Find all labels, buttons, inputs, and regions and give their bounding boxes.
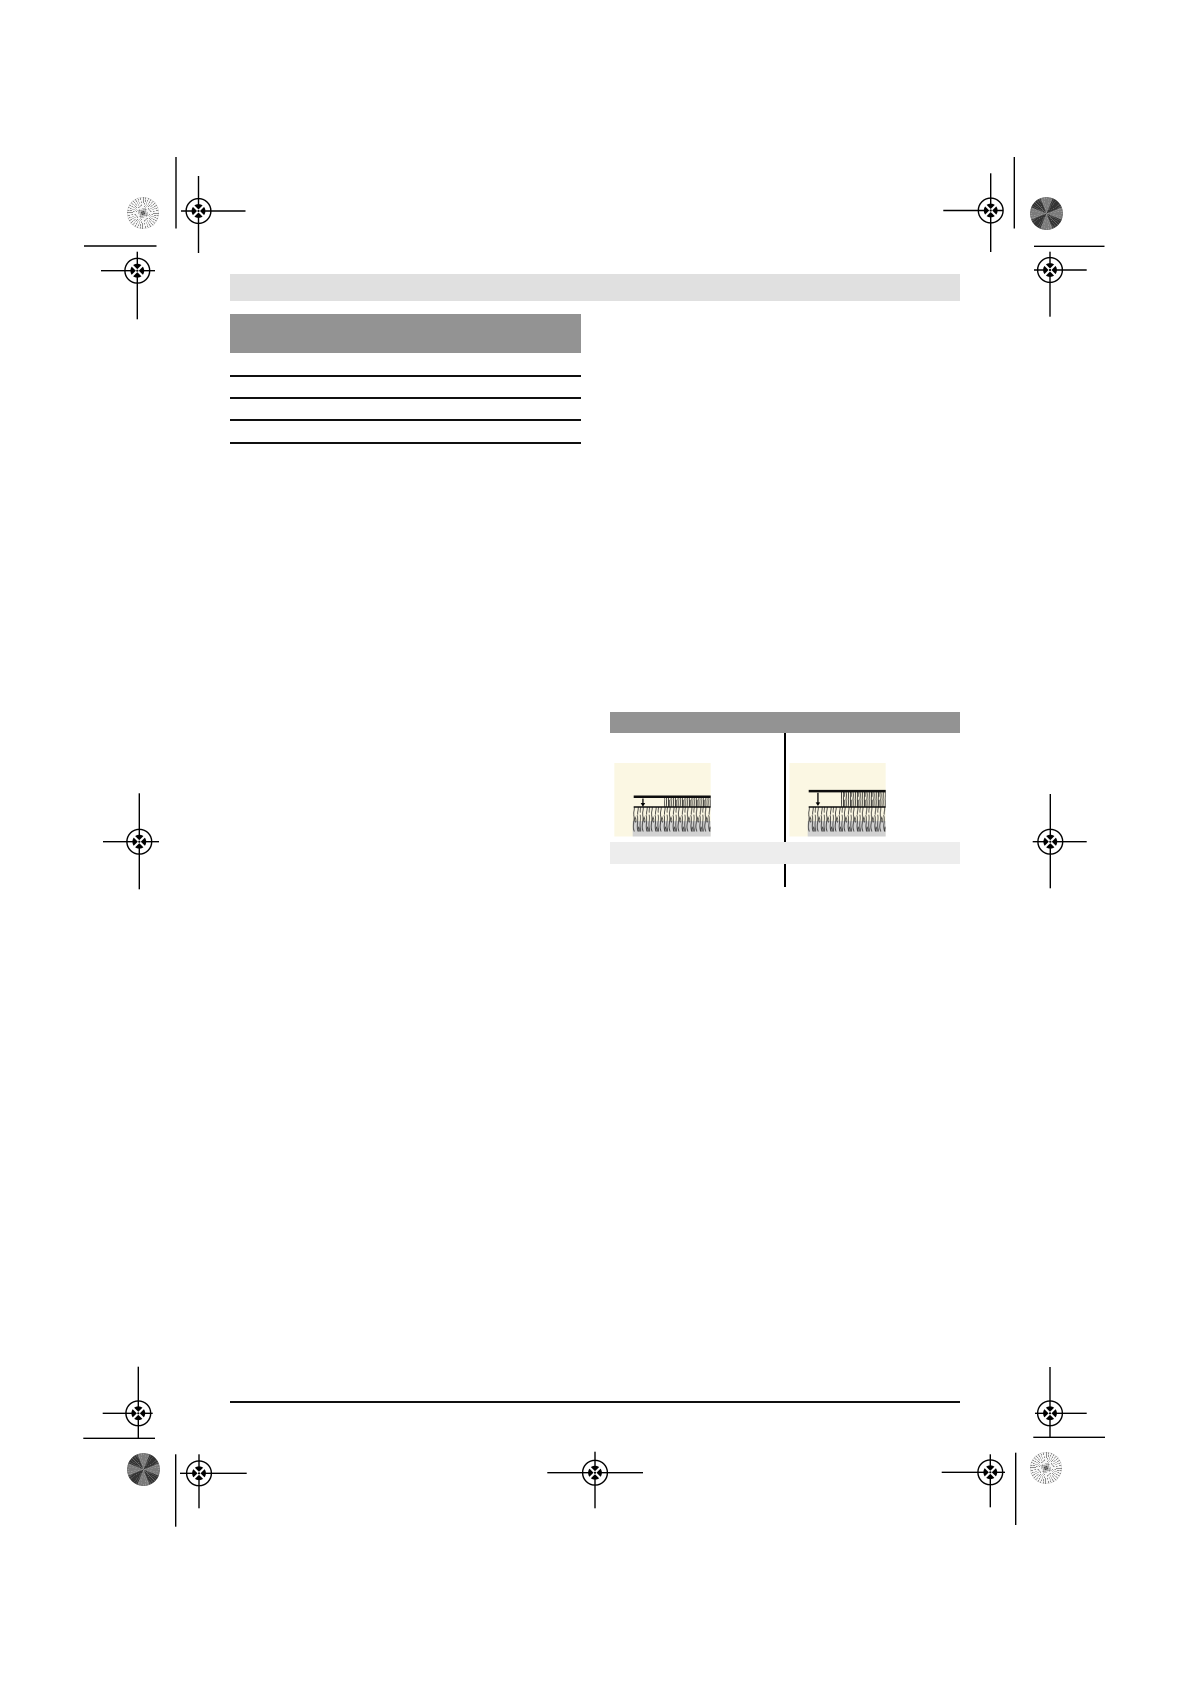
pdf-page bbox=[0, 0, 1190, 1684]
figure-grass-low bbox=[807, 807, 885, 832]
registration-crosshair-icon bbox=[125, 1400, 152, 1427]
registration-crosshair-icon bbox=[124, 257, 151, 284]
calibration-disk-dark-icon bbox=[127, 1453, 160, 1486]
figure-grass-uncut bbox=[840, 790, 885, 807]
calibration-disk-light-icon bbox=[1030, 1452, 1062, 1484]
registration-crosshair-icon bbox=[1037, 257, 1064, 284]
figure-grass-low bbox=[632, 807, 710, 832]
table-rule-1 bbox=[230, 375, 581, 377]
table-rule-2 bbox=[230, 397, 581, 399]
registration-crosshair-icon bbox=[977, 197, 1004, 224]
registration-crosshair-icon bbox=[1037, 1400, 1064, 1427]
registration-crosshair-icon bbox=[1037, 828, 1064, 855]
registration-crosshair-icon bbox=[977, 1459, 1004, 1486]
tips-table-caption-row bbox=[610, 842, 960, 864]
footer-rule bbox=[230, 1401, 960, 1403]
calibration-disk-light-icon bbox=[127, 197, 159, 229]
page-header-strip bbox=[230, 274, 960, 301]
registration-crosshair-icon bbox=[126, 828, 153, 855]
grass-cut-figure-deep bbox=[789, 763, 886, 837]
section-heading-bar bbox=[230, 314, 581, 353]
registration-crosshair-icon bbox=[582, 1459, 609, 1486]
tips-table-header-bar bbox=[610, 712, 960, 734]
registration-crosshair-icon bbox=[185, 198, 212, 225]
tips-table-column-divider bbox=[784, 733, 786, 842]
tips-table-column-divider-lower bbox=[784, 864, 786, 887]
grass-cut-figure-shallow bbox=[614, 763, 711, 837]
table-rule-4 bbox=[230, 442, 581, 444]
table-rule-3 bbox=[230, 419, 581, 421]
calibration-disk-dark-icon bbox=[1030, 197, 1063, 230]
registration-crosshair-icon bbox=[186, 1460, 213, 1487]
registration-marks-overlay bbox=[0, 0, 1190, 1684]
